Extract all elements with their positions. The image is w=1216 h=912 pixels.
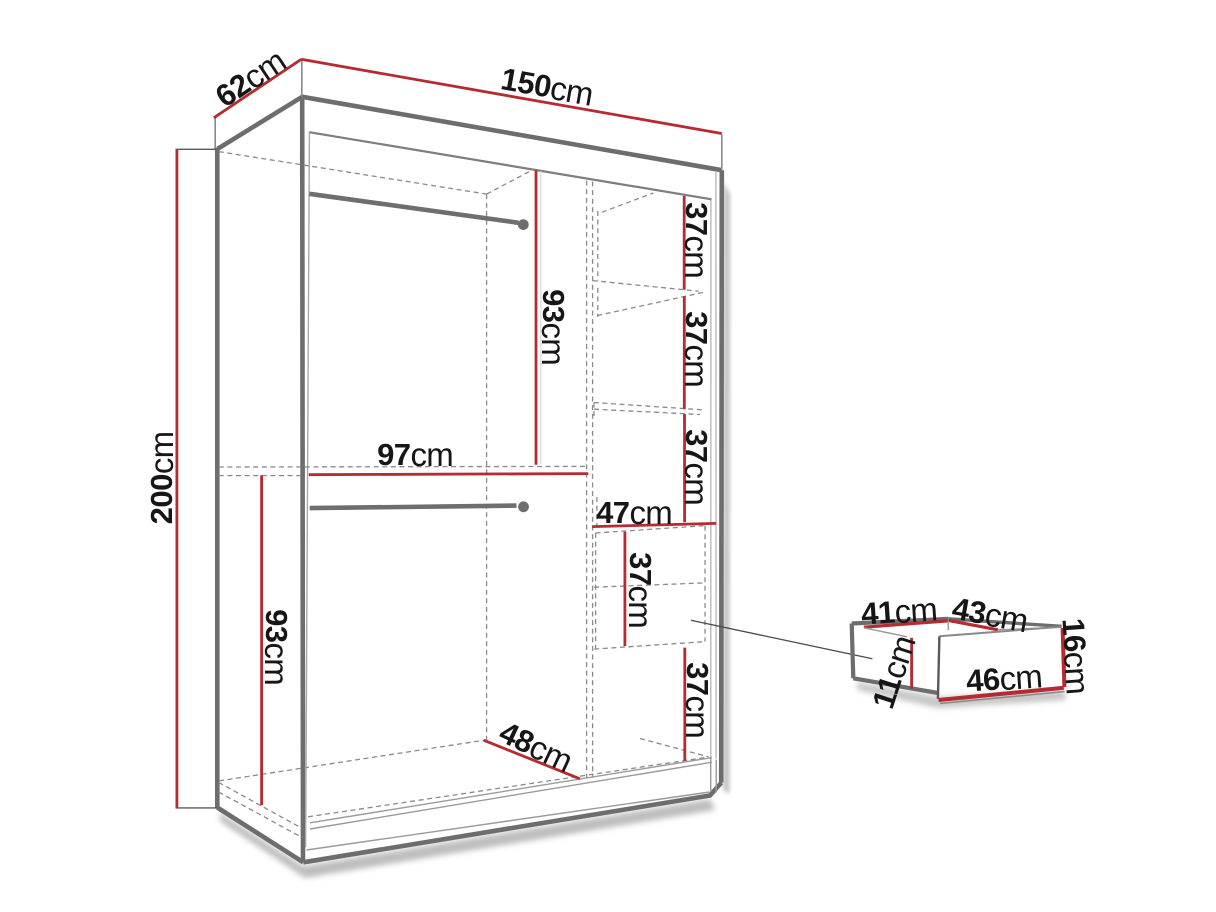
svg-text:37cm: 37cm xyxy=(623,552,660,628)
svg-text:37cm: 37cm xyxy=(679,429,716,505)
svg-text:93cm: 93cm xyxy=(536,289,573,365)
svg-text:48cm: 48cm xyxy=(494,713,578,779)
svg-text:47cm: 47cm xyxy=(596,494,672,531)
svg-text:62cm: 62cm xyxy=(208,41,292,114)
svg-text:37cm: 37cm xyxy=(679,202,716,278)
svg-text:37cm: 37cm xyxy=(679,311,716,387)
svg-text:93cm: 93cm xyxy=(259,609,296,685)
svg-text:37cm: 37cm xyxy=(680,662,717,738)
svg-text:150cm: 150cm xyxy=(498,60,596,113)
svg-text:43cm: 43cm xyxy=(949,589,1030,639)
svg-text:46cm: 46cm xyxy=(965,657,1043,699)
svg-text:200cm: 200cm xyxy=(143,432,180,525)
svg-text:41cm: 41cm xyxy=(860,590,938,632)
svg-text:97cm: 97cm xyxy=(377,436,453,473)
svg-text:16cm: 16cm xyxy=(1055,617,1097,695)
